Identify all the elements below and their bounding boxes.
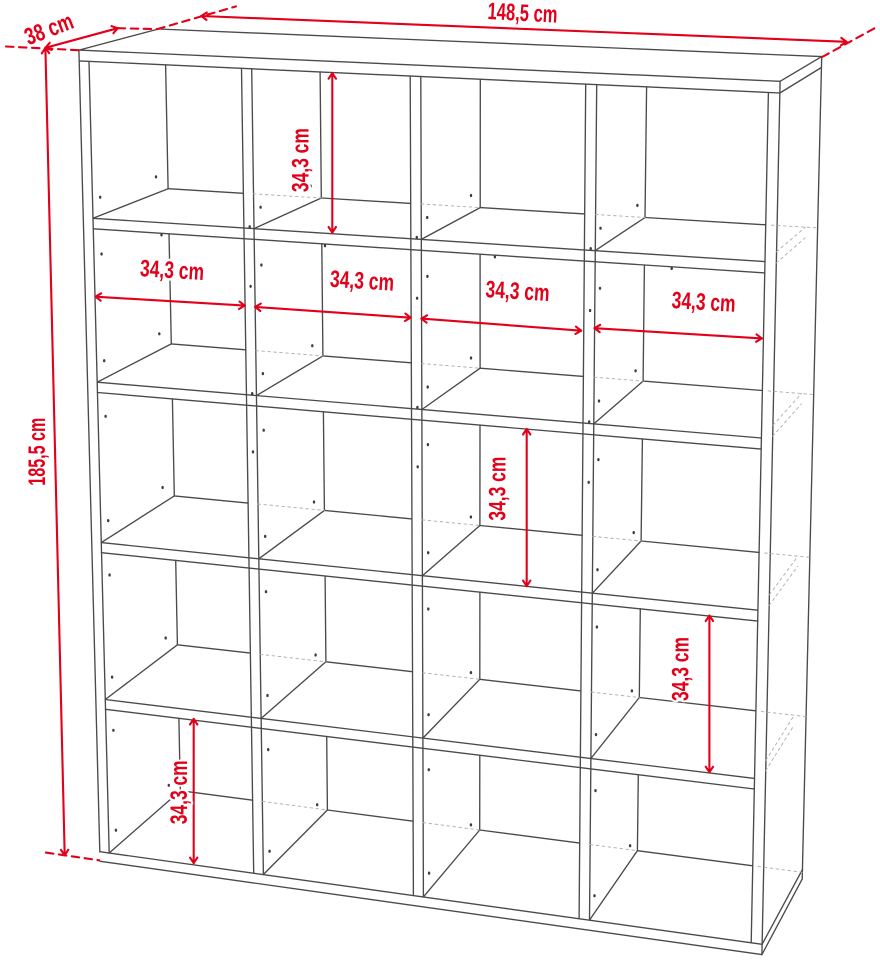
svg-text:34,3 cm: 34,3 cm: [484, 457, 511, 521]
svg-text:34,3 cm: 34,3 cm: [329, 266, 395, 297]
svg-text:34,3 cm: 34,3 cm: [288, 128, 315, 192]
svg-text:34,3 cm: 34,3 cm: [667, 637, 694, 701]
svg-text:185,5 cm: 185,5 cm: [24, 418, 51, 486]
svg-text:34,3 cm: 34,3 cm: [485, 276, 551, 307]
svg-text:34,3 cm: 34,3 cm: [139, 255, 205, 286]
svg-text:34,3 cm: 34,3 cm: [671, 287, 737, 318]
svg-text:34,3 cm: 34,3 cm: [166, 760, 193, 824]
svg-text:148,5 cm: 148,5 cm: [487, 0, 558, 29]
